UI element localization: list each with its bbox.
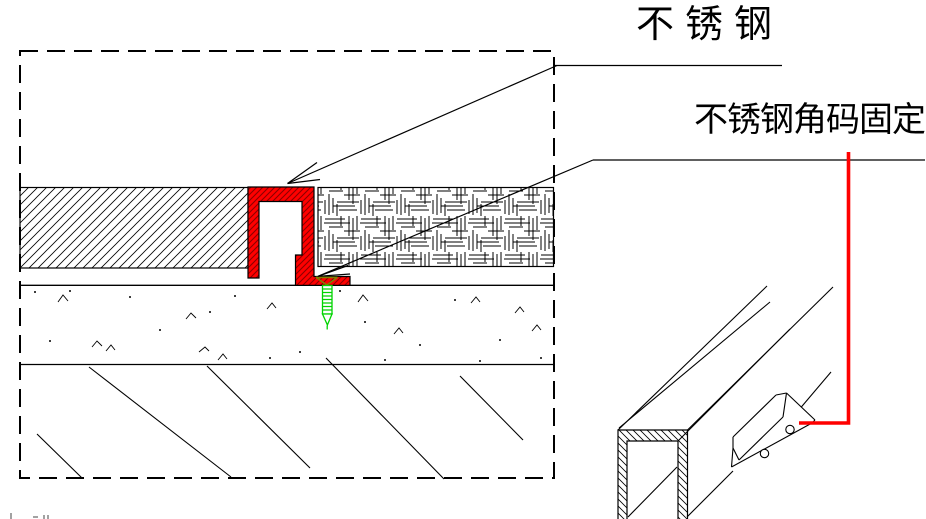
finish-layer-left-hatch [20,188,248,269]
bracket-hole [786,425,794,433]
angle-bracket-body [732,393,816,467]
label-bracket-fixing: 不锈钢角码固定 [694,103,925,139]
construction-detail-drawing: 不锈钢 不锈钢角码固定 [0,0,926,519]
bedding-layer-lines [20,285,554,364]
red-annotation-line [799,152,849,423]
label-stainless-steel: 不锈钢 [636,6,783,46]
aggregate-marks [58,295,541,360]
concrete-layer [34,290,542,362]
base-structure-layer [37,358,523,479]
isometric-channel [618,286,833,519]
bracket-hole [760,449,768,457]
isometric-angle-bracket [732,393,816,467]
detail-drawing-svg [0,0,926,519]
cutoff-text-fragments [11,513,48,519]
concrete-dots [34,290,542,362]
fixing-screw [323,286,333,330]
